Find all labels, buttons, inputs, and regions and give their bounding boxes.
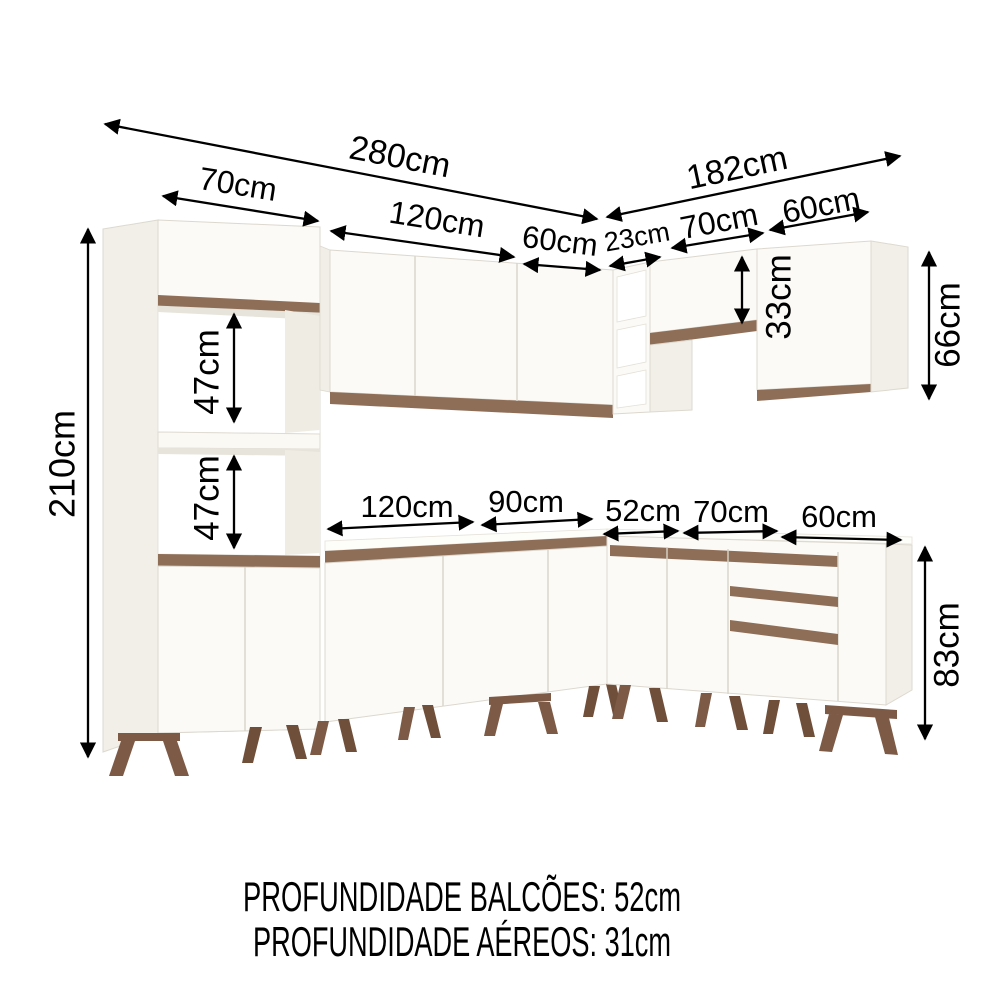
- cabinet-leg: [538, 702, 558, 734]
- cabinet-leg: [163, 741, 189, 776]
- upper-cabinet-face: [330, 250, 613, 405]
- dim-label-52-base: 52cm: [605, 493, 681, 528]
- corner-niche: [617, 370, 646, 408]
- footer-depth-counters: PROFUNDIDADE BALCÕES: 52cm: [243, 873, 681, 920]
- dim-label-60-base: 60cm: [801, 499, 877, 534]
- product-dimension-diagram: 280cm 182cm 70cm 120cm 60cm 23cm 70cm 60…: [0, 0, 1000, 1000]
- base-cabinet-side-panel: [886, 544, 912, 705]
- dim-label-90-base: 90cm: [488, 484, 564, 519]
- niche-side-panel: [285, 310, 320, 433]
- dim-label-70-base: 70cm: [693, 494, 769, 529]
- dim-label-182: 182cm: [683, 139, 791, 197]
- dim-label-70-top-left: 70cm: [197, 160, 280, 208]
- footer-depth-uppers: PROFUNDIDADE AÉREOS: 31cm: [253, 918, 671, 965]
- niche-shelf: [158, 432, 320, 449]
- dim-arrow-90-base: [482, 519, 592, 525]
- cabinet-leg: [819, 714, 843, 752]
- dim-label-120-base: 120cm: [360, 489, 453, 524]
- dim-label-47-upper: 47cm: [188, 329, 227, 415]
- cabinet-leg: [649, 688, 668, 722]
- dim-label-47-lower: 47cm: [188, 455, 227, 541]
- dim-label-70-top-right: 70cm: [677, 196, 761, 246]
- cabinet-leg: [484, 704, 503, 736]
- dim-label-66: 66cm: [929, 282, 968, 368]
- tall-cabinet-doors: [158, 566, 320, 733]
- cabinet-leg: [422, 705, 441, 738]
- corner-shelf-unit: [613, 262, 650, 414]
- tall-cabinet-side-panel: [103, 220, 158, 752]
- dim-label-210: 210cm: [42, 410, 83, 518]
- dim-label-60-top-right: 60cm: [779, 180, 863, 230]
- cabinet-leg-rail: [118, 733, 180, 741]
- cabinet-leg: [796, 703, 815, 737]
- dim-label-83: 83cm: [928, 602, 967, 688]
- cabinet-side-edge: [320, 246, 330, 392]
- footer-text: PROFUNDIDADE BALCÕES: 52cm PROFUNDIDADE …: [243, 873, 681, 965]
- cabinet-leg: [583, 686, 600, 717]
- dim-label-60-top-left: 60cm: [520, 219, 600, 263]
- upper-cabinets-left-run: [320, 246, 613, 418]
- base-cabinets-right-run: [607, 529, 912, 755]
- cabinet-leg: [729, 696, 748, 730]
- dim-label-120-top: 120cm: [387, 194, 487, 245]
- dim-label-23: 23cm: [602, 216, 672, 257]
- cabinet-leg: [286, 725, 307, 759]
- base-cabinet-doors: [325, 546, 607, 722]
- corner-niche: [617, 324, 646, 368]
- cabinet-leg: [763, 700, 780, 734]
- upper-cabinet-side-panel: [871, 241, 908, 392]
- kitchen-line-art: 280cm 182cm 70cm 120cm 60cm 23cm 70cm 60…: [0, 0, 1000, 1000]
- niche-side-panel: [285, 450, 320, 555]
- corner-unit-side-panel: [650, 340, 692, 412]
- dim-label-33: 33cm: [760, 254, 799, 340]
- cabinet-leg: [695, 693, 712, 727]
- cabinet-leg: [242, 727, 262, 763]
- cabinet-leg: [338, 719, 357, 752]
- corner-niche: [617, 270, 646, 322]
- base-cabinets-left-run: [310, 529, 623, 755]
- dim-label-280: 280cm: [346, 129, 453, 186]
- cabinet-leg: [875, 717, 898, 755]
